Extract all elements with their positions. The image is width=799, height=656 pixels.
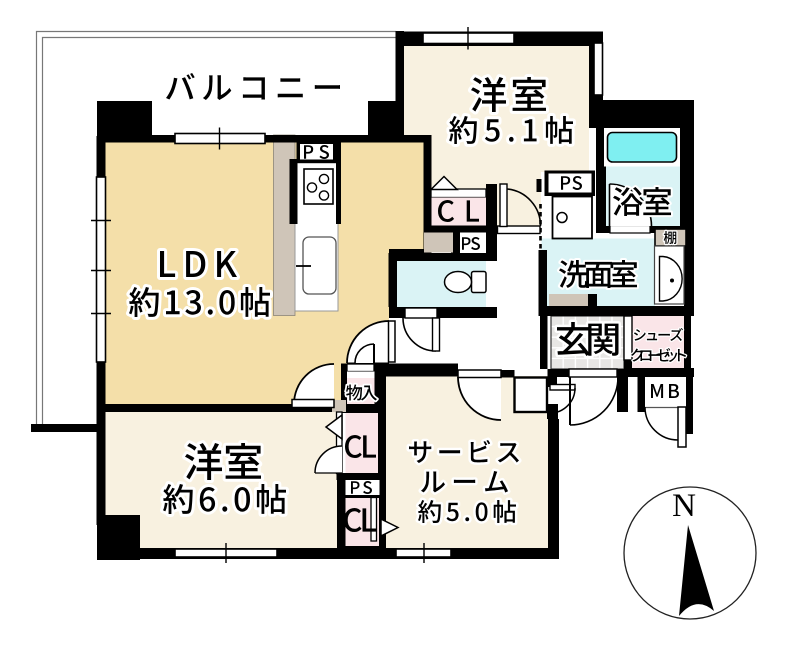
svg-text:N: N [672,488,696,524]
